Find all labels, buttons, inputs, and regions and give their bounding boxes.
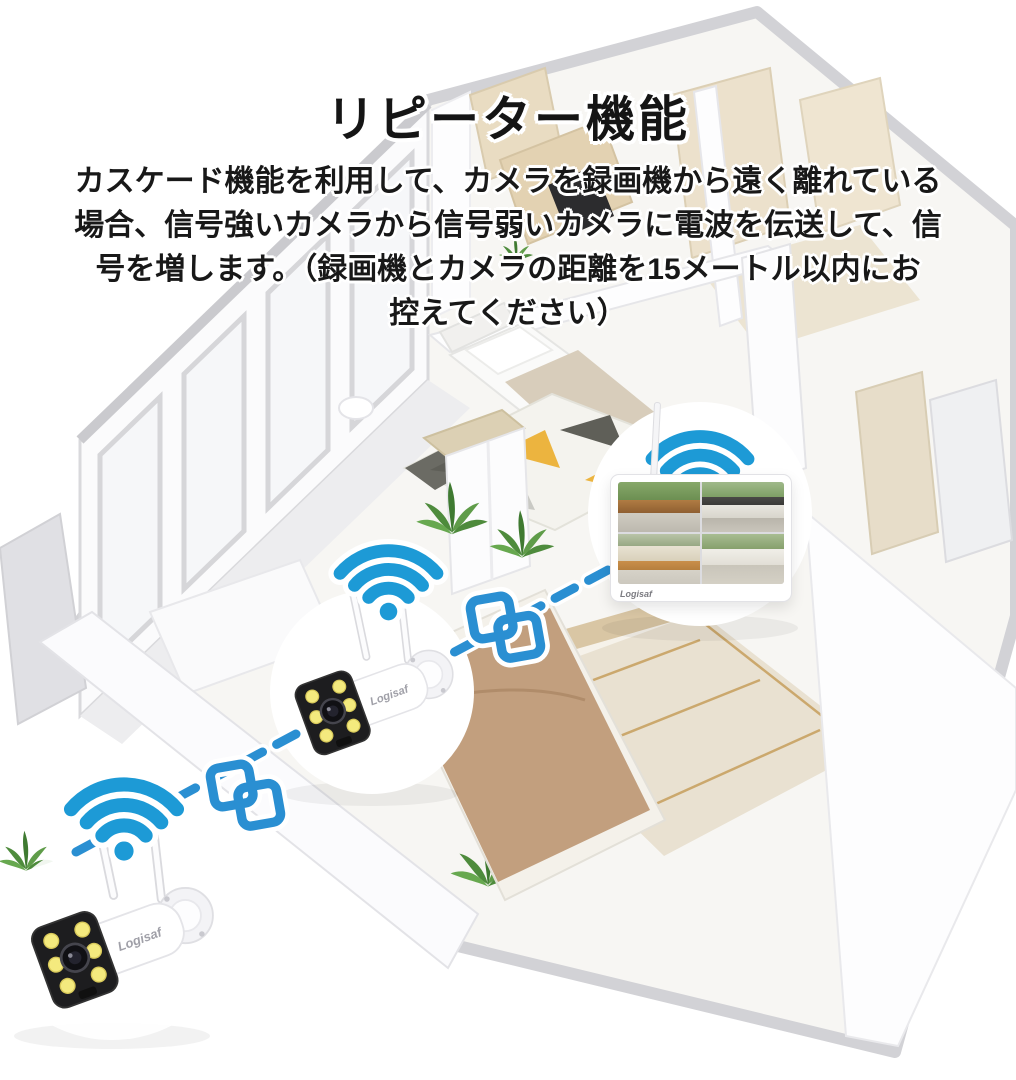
nvr-monitor: Logisaf — [610, 474, 792, 602]
monitor-brand-label: Logisaf — [620, 589, 652, 599]
repeater-link-icon — [209, 759, 282, 832]
page-title: リピーター機能 — [0, 80, 1016, 151]
camera-feed-1 — [618, 482, 700, 532]
product-infographic: Logisaf — [0, 0, 1016, 1080]
description-line-2: 場合、信号強いカメラから信号弱いカメラに電波を伝送して、信 — [0, 204, 1016, 248]
repeater-link-icon — [469, 591, 542, 664]
camera-feed-2 — [702, 482, 784, 532]
description-line-3: 号を増します。（録画機とカメラの距離を15メートル以内にお — [0, 248, 1016, 292]
monitor-screen — [618, 482, 784, 584]
description-text: カスケード機能を利用して、カメラを録画機から遠く離れている 場合、信号強いカメラ… — [0, 160, 1016, 336]
camera-feed-4 — [702, 534, 784, 584]
description-line-4: 控えてください） — [0, 292, 1016, 336]
camera-feed-3 — [618, 534, 700, 584]
description-line-1: カスケード機能を利用して、カメラを録画機から遠く離れている — [0, 160, 1016, 204]
